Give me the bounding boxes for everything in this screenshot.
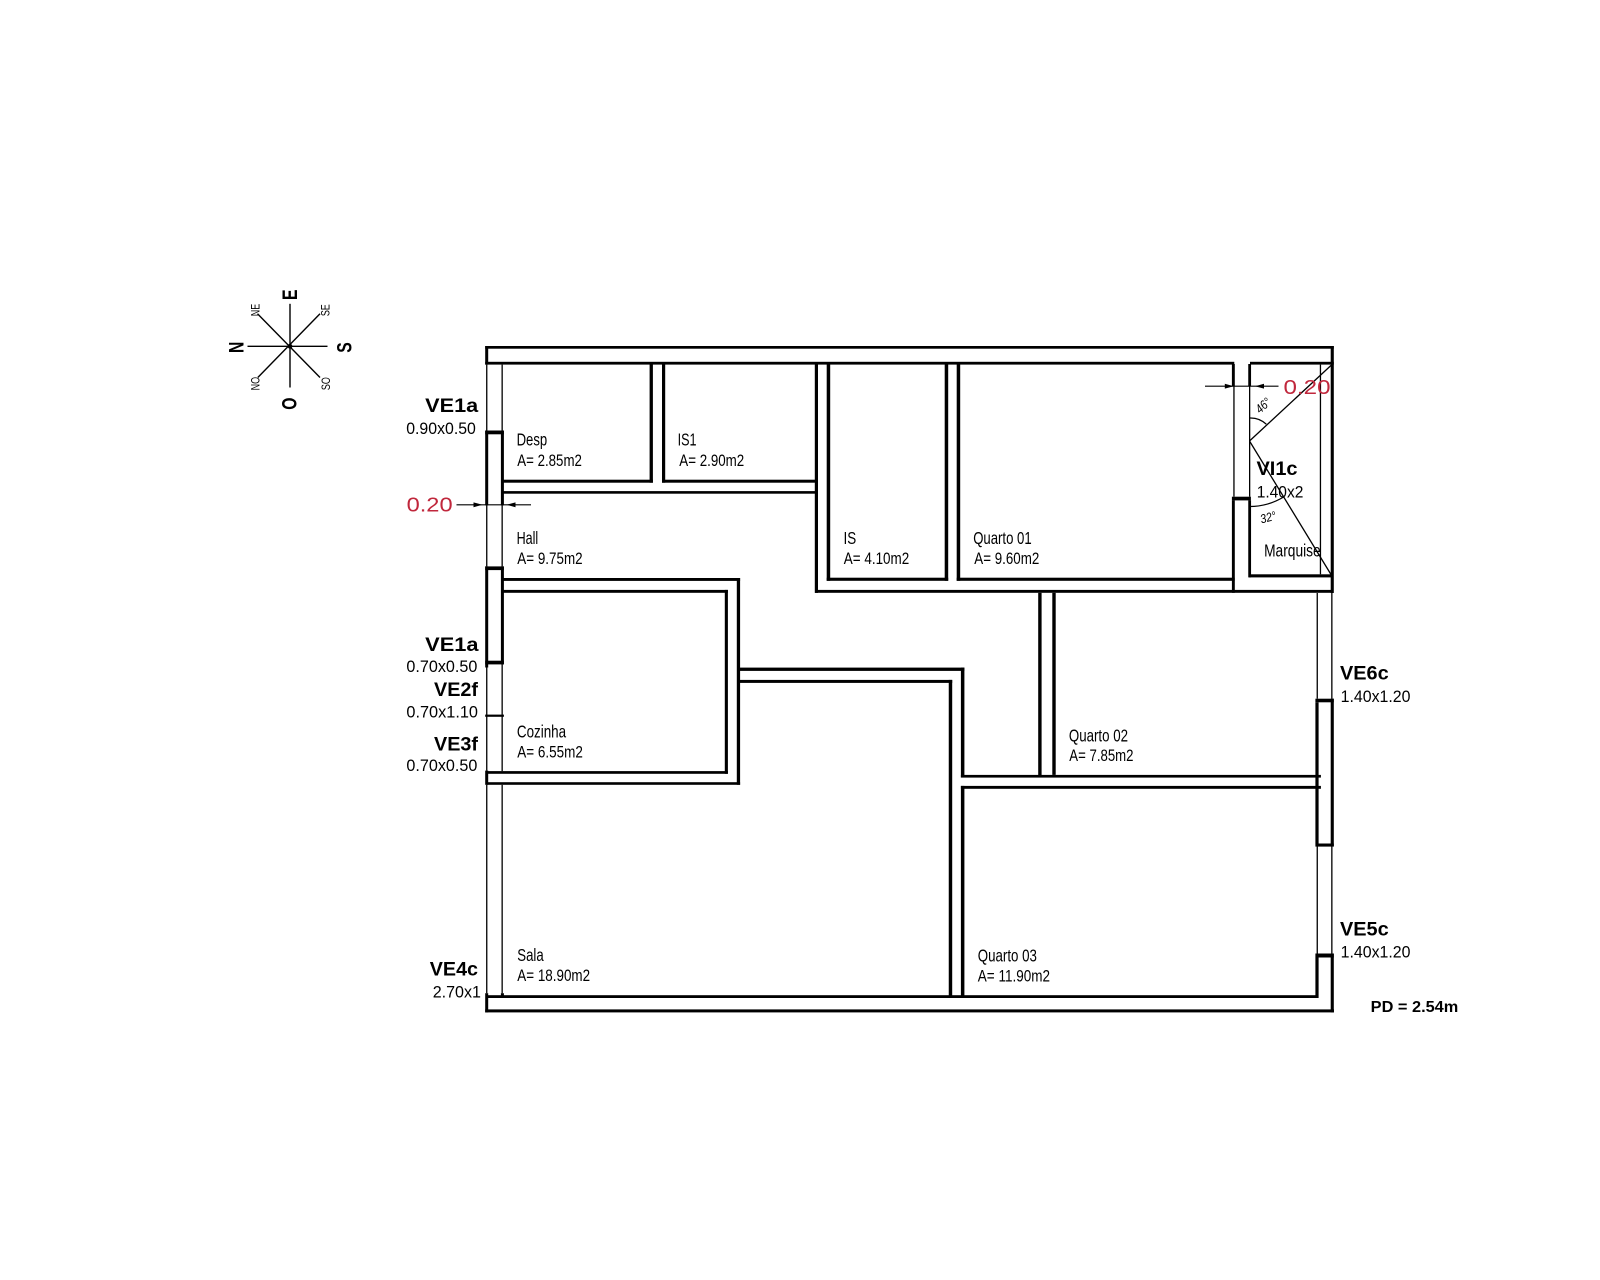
svg-text:SE: SE [320,304,332,316]
svg-text:A= 18.90m2: A= 18.90m2 [517,966,590,985]
svg-text:Sala: Sala [517,945,544,965]
svg-text:A= 7.85m2: A= 7.85m2 [1069,746,1133,765]
svg-text:Quarto 03: Quarto 03 [978,945,1037,965]
svg-text:VE2f: VE2f [434,679,478,701]
svg-text:A= 4.10m2: A= 4.10m2 [844,549,909,568]
svg-text:Hall: Hall [517,528,539,548]
svg-text:VE6c: VE6c [1340,663,1389,685]
svg-text:Quarto 02: Quarto 02 [1069,725,1128,745]
svg-text:VE3f: VE3f [434,734,478,756]
svg-text:1.40x2: 1.40x2 [1257,482,1304,501]
svg-text:A= 9.75m2: A= 9.75m2 [517,549,582,568]
svg-text:S: S [332,342,356,353]
svg-text:VE5c: VE5c [1340,919,1389,941]
svg-text:IS: IS [844,528,857,548]
svg-text:Desp: Desp [517,429,548,449]
svg-text:N: N [224,342,248,353]
svg-text:NE: NE [250,304,262,317]
svg-text:1.40x1.20: 1.40x1.20 [1341,687,1411,706]
svg-text:Quarto 01: Quarto 01 [973,528,1031,548]
svg-text:SO: SO [321,377,333,390]
svg-text:VE4c: VE4c [430,958,478,980]
svg-text:0.20: 0.20 [1284,376,1331,399]
svg-text:PD = 2.54m: PD = 2.54m [1371,999,1459,1016]
svg-text:A= 2.90m2: A= 2.90m2 [679,451,744,470]
svg-text:VE1a: VE1a [425,634,479,656]
svg-text:2.70x1: 2.70x1 [433,982,481,1001]
svg-text:A= 9.60m2: A= 9.60m2 [974,549,1039,568]
svg-text:A= 2.85m2: A= 2.85m2 [517,451,582,470]
svg-text:VE1a: VE1a [425,395,479,417]
svg-text:0.70x0.50: 0.70x0.50 [406,657,477,676]
svg-text:1.40x1.20: 1.40x1.20 [1341,943,1411,962]
svg-text:Marquise: Marquise [1264,540,1321,560]
svg-text:O: O [277,397,301,409]
svg-text:0.70x0.50: 0.70x0.50 [406,756,477,775]
svg-text:0.90x0.50: 0.90x0.50 [406,419,476,438]
svg-text:NO: NO [250,377,262,390]
svg-text:A= 11.90m2: A= 11.90m2 [978,966,1050,985]
svg-text:A= 6.55m2: A= 6.55m2 [517,743,583,762]
svg-text:0.20: 0.20 [407,494,453,517]
svg-text:0.70x1.10: 0.70x1.10 [406,702,478,721]
svg-text:Cozinha: Cozinha [517,721,566,741]
svg-text:E: E [278,290,302,301]
svg-text:VI1c: VI1c [1257,458,1298,480]
svg-text:IS1: IS1 [678,429,697,449]
